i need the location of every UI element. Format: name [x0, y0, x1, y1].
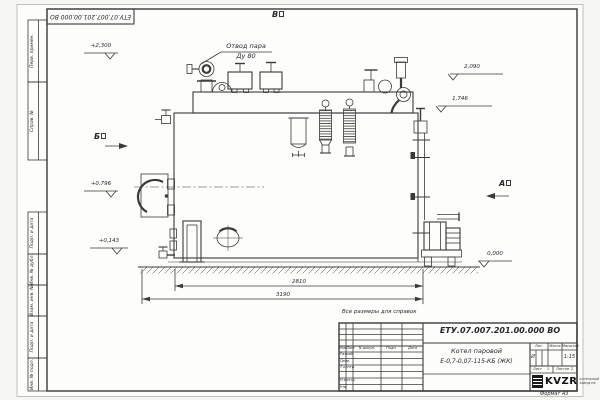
sheet-value: 1	[547, 368, 549, 372]
view-label-a: А	[499, 180, 511, 188]
col-header-izm: Изм.	[339, 347, 346, 351]
sheets-value: 2	[571, 368, 573, 372]
frame-strip-label: Взам. инв. №	[30, 285, 35, 316]
view-sheet-ref	[506, 180, 511, 186]
product-name-line1: Котел паровой	[423, 348, 530, 355]
reference-note: Все размеры для справок	[342, 310, 417, 316]
tb-row-label: Разраб.	[340, 353, 354, 357]
top-stamp: ЕТУ.07.007.201.00.000 ВО	[47, 9, 134, 24]
callout-steam-outlet: Отвод пара	[218, 43, 274, 50]
elevation-value: 1,746	[440, 97, 480, 103]
elevation-value: +2,300	[84, 44, 118, 50]
kvzr-logo: KVZR КОТЕЛЬНЫЙ ЗАВОД РФ	[532, 375, 599, 388]
drawing-line-art	[0, 0, 600, 400]
tb-row-label: Н.контр.	[340, 379, 356, 383]
col-header-sign: Подп.	[381, 347, 402, 351]
frame-strip-label: Инв. № дубл.	[30, 254, 35, 285]
view-label-v: В	[272, 11, 284, 19]
frame-strip-label: Инв. № подл.	[30, 358, 35, 391]
scale-value: 1:15	[562, 355, 577, 360]
col-header-list: Лист	[346, 347, 353, 351]
scale-label: Масштаб	[562, 345, 577, 349]
frame-strip-label: Справ. №	[30, 82, 35, 160]
dimension-overall: 3190	[258, 293, 308, 299]
drawing-sheet: ЕТУ.07.007.201.00.000 ВО Перв. примен. С…	[0, 0, 600, 400]
callout-steam-outlet-dn: Ду 80	[218, 53, 274, 60]
elevation-value: +0,143	[90, 239, 128, 245]
format-label: Формат А3	[540, 392, 568, 397]
kvzr-logo-text: KVZR	[545, 376, 577, 387]
product-name-line2: Е-0,7-0,07-115-КБ (ЖК)	[423, 359, 530, 365]
tb-row-label: Т.контр.	[340, 366, 355, 370]
view-label-b: Б	[94, 133, 106, 141]
kvzr-logo-icon	[532, 375, 543, 388]
frame-strip-label: Перв. примен.	[30, 20, 35, 82]
sheet-frame	[17, 5, 583, 397]
lit-label: Лит.	[530, 345, 548, 349]
col-header-doc: N докум.	[353, 347, 381, 351]
col-header-date: Дата	[402, 347, 423, 351]
elevation-value: 0,000	[478, 252, 512, 258]
sheet-label: Лист	[533, 368, 542, 372]
frame-strip-label: Подп. и дата	[30, 316, 35, 358]
dimension-inner: 2810	[274, 280, 324, 286]
tb-row-label: Пров.	[340, 360, 350, 364]
view-sheet-ref	[101, 133, 106, 139]
sheets-label: Листов	[556, 368, 569, 372]
frame-strip-label: Подп. и дата	[30, 212, 35, 254]
lit-value: И	[530, 355, 536, 360]
tb-row-label: Утв.	[340, 386, 347, 390]
elevation-value: 2,090	[452, 65, 492, 71]
view-sheet-ref	[279, 11, 284, 17]
mass-label: Масса	[548, 345, 562, 349]
elevation-value: +0,796	[84, 182, 118, 188]
doc-number: ЕТУ.07.007.201.00.000 ВО	[423, 327, 577, 335]
kvzr-logo-caption: КОТЕЛЬНЫЙ ЗАВОД РФ	[579, 378, 599, 385]
